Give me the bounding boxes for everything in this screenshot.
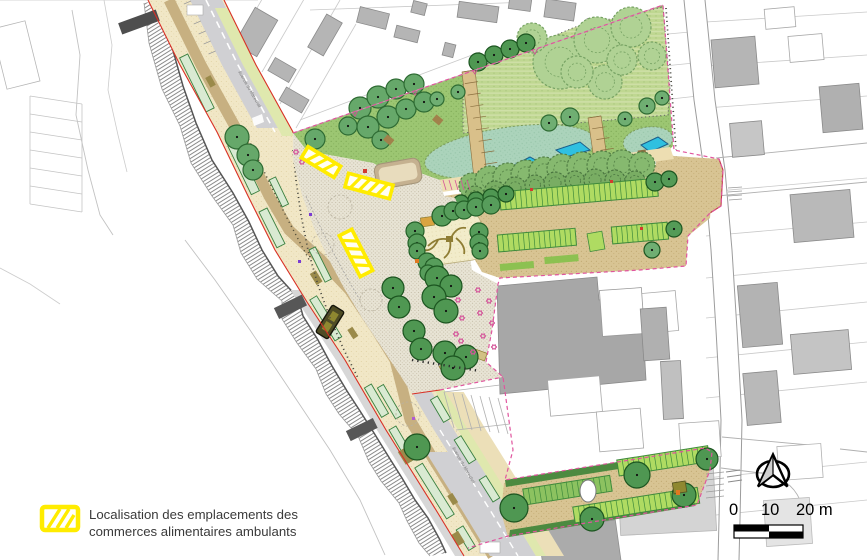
svg-text:0: 0 (729, 501, 738, 519)
svg-text:commerces alimentaires ambulan: commerces alimentaires ambulants (89, 524, 297, 539)
svg-text:20 m: 20 m (796, 501, 833, 519)
svg-text:Localisation des emplacements: Localisation des emplacements des (89, 507, 298, 522)
svg-text:10: 10 (761, 501, 779, 519)
